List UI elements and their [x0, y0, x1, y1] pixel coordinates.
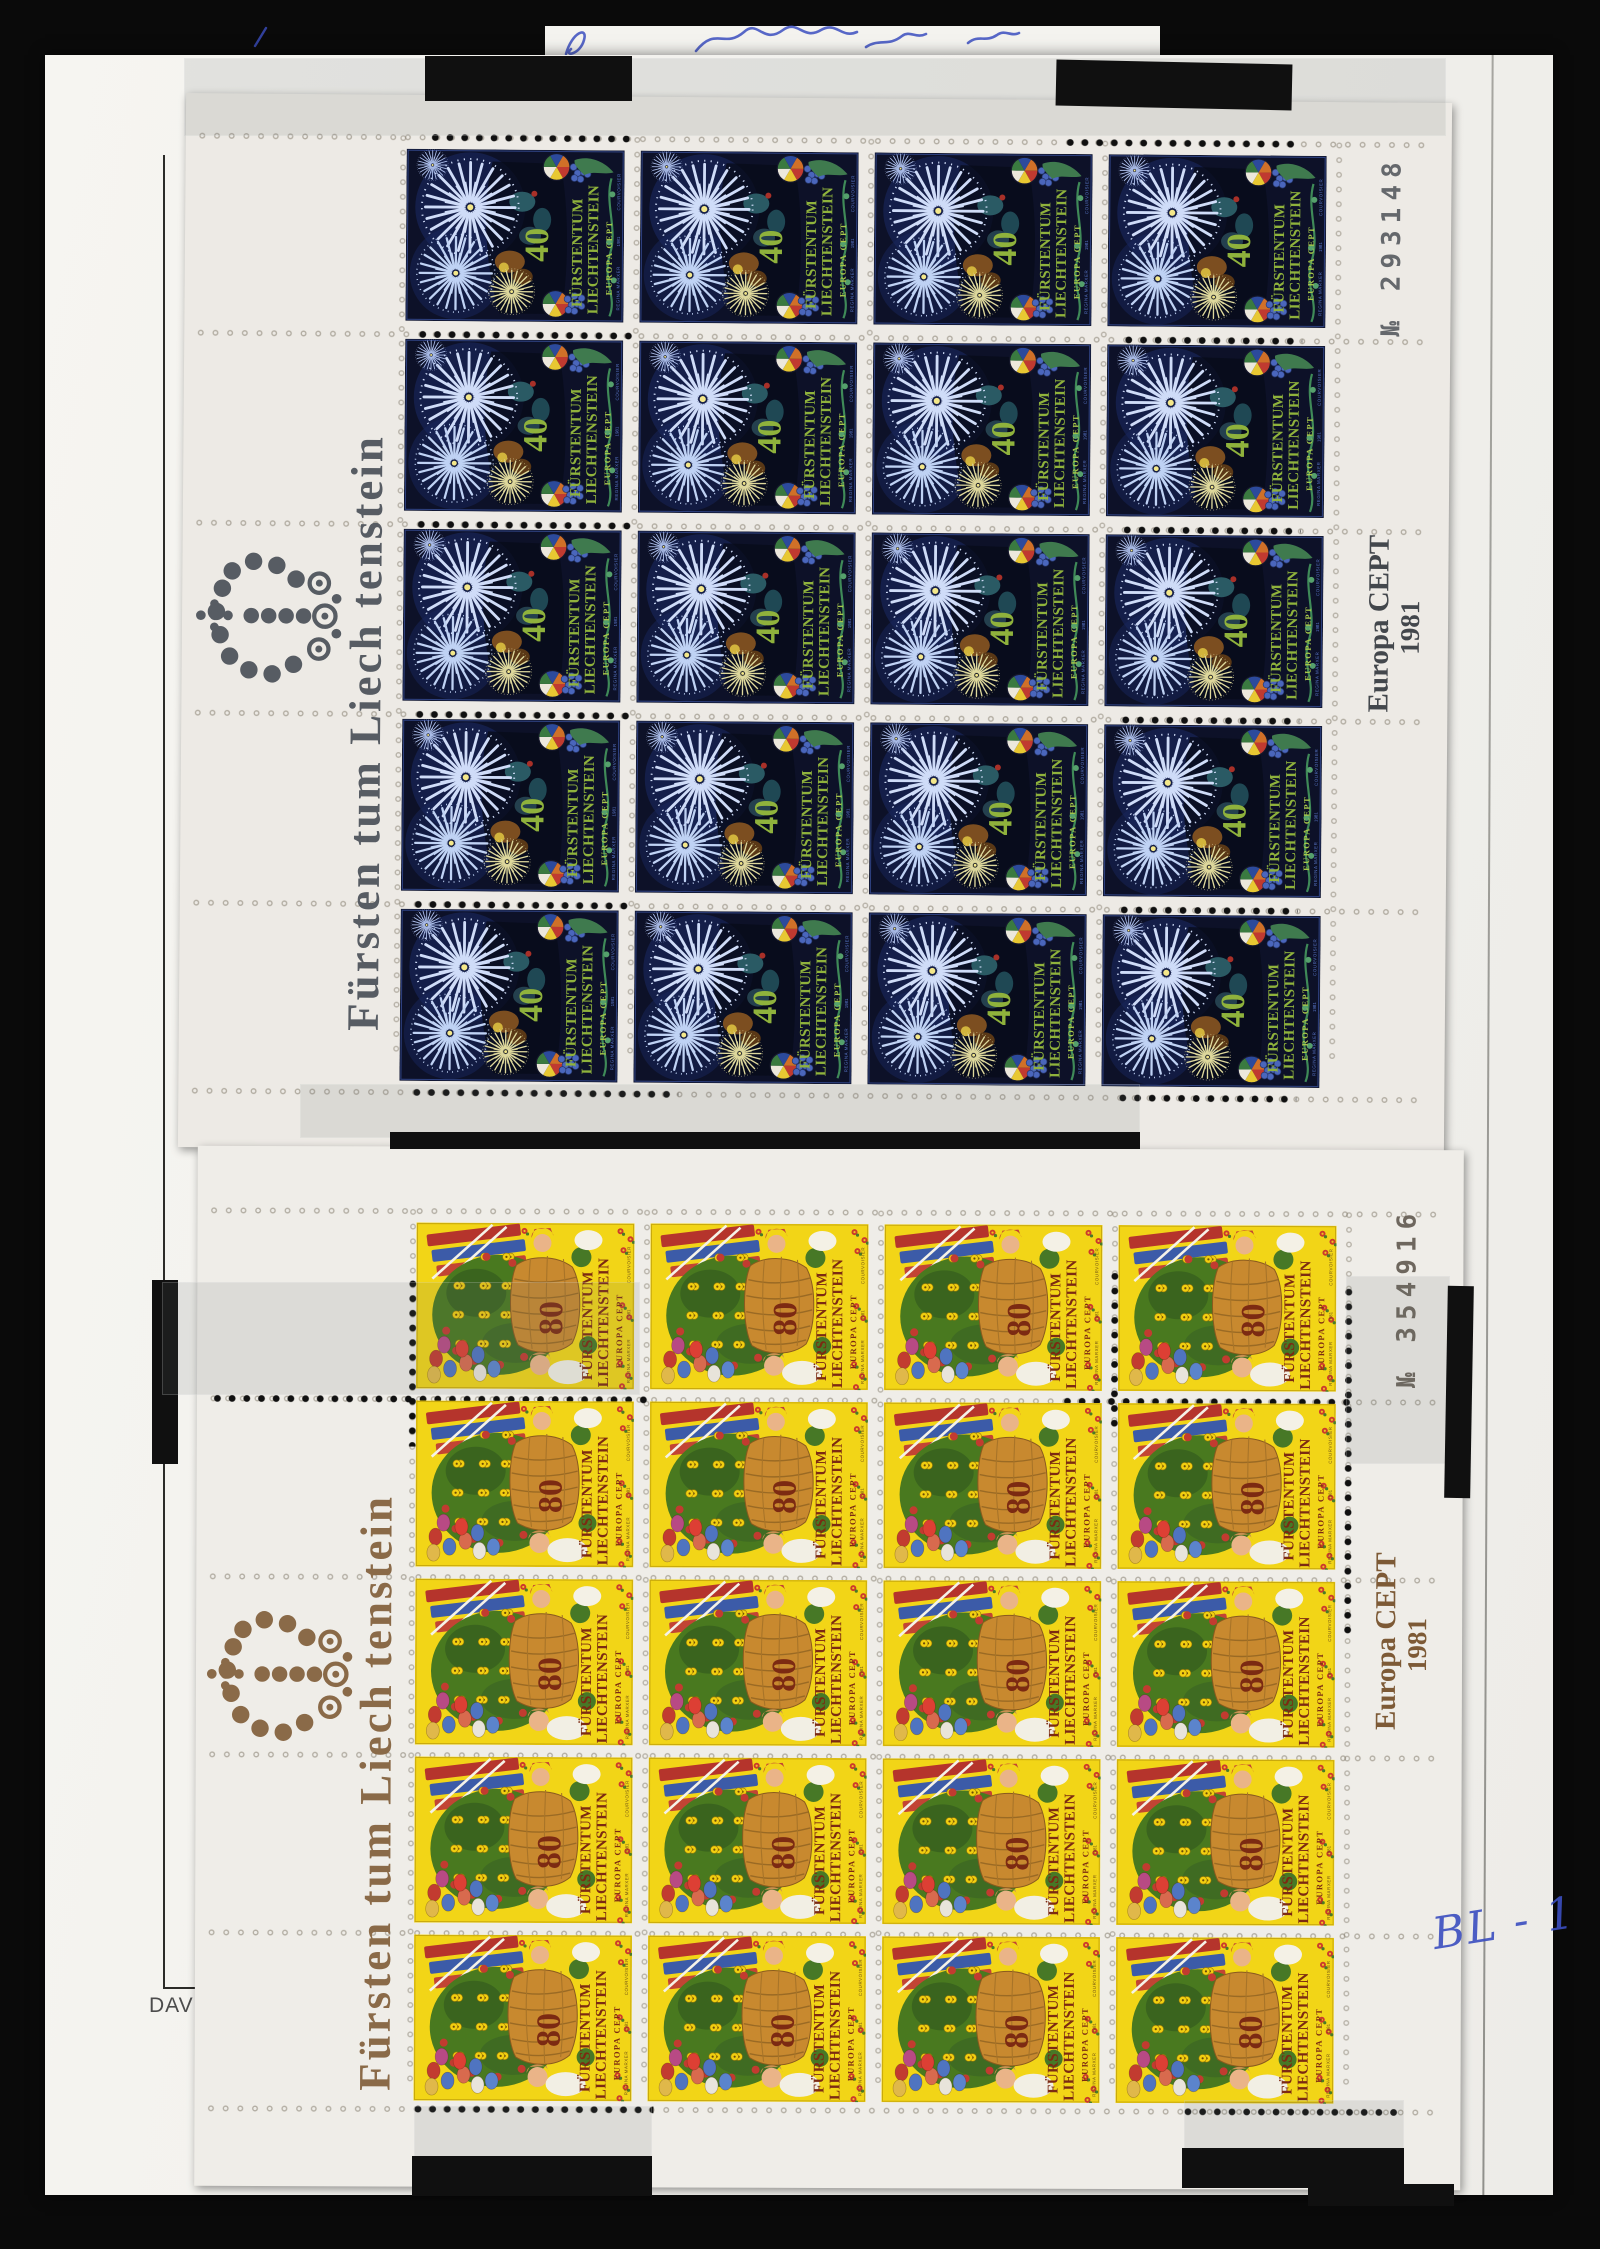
- mount-strip-black-backing: [1444, 1286, 1474, 1498]
- album-brand-text: DAV: [149, 1994, 194, 2018]
- perforation-column: [1326, 138, 1346, 1066]
- stamp-40-fireworks: [1107, 154, 1326, 328]
- stamp-40-fireworks: [1101, 914, 1320, 1088]
- stamp-80-basket-of-flowers: [647, 1935, 866, 2102]
- page-crease: [1482, 55, 1493, 2195]
- princely-crown-logo: [206, 1594, 362, 1755]
- stamp-80-basket-of-flowers: [650, 1223, 869, 1390]
- stamp-80-basket-of-flowers: [413, 1935, 632, 2102]
- stamp-40-fireworks: [402, 529, 621, 703]
- mount-strip-black-backing: [1056, 60, 1293, 111]
- stamp-40-fireworks: [869, 722, 1088, 896]
- stamp-80-basket-of-flowers: [649, 1579, 868, 1746]
- princely-crown-logo: [194, 535, 350, 696]
- stamp-40-fireworks: [636, 531, 855, 705]
- stamp-40-fireworks: [404, 339, 623, 513]
- stamp-80-basket-of-flowers: [414, 1757, 633, 1924]
- sheet-margin-inscription: Europa CEPT 1981: [1370, 1560, 1433, 1730]
- mount-strip-black-backing: [425, 56, 632, 101]
- stamp-40-fireworks: [870, 532, 1089, 706]
- handwriting-tick: [252, 26, 270, 48]
- inscription-line2: 1981: [1402, 1560, 1433, 1730]
- stamp-80-basket-of-flowers: [881, 1936, 1100, 2103]
- sheet-serial-number: № 293148: [1376, 136, 1408, 336]
- stamp-40-fireworks: [873, 152, 1092, 326]
- stamp-sheet-40-fireworks: Fürsten tum Liech tenstein№ 293148 Europ…: [178, 93, 1452, 1157]
- stamp-80-basket-of-flowers: [882, 1758, 1101, 1925]
- stamp-80-basket-of-flowers: [1118, 1225, 1337, 1392]
- stamp-40-fireworks: [399, 909, 618, 1083]
- mount-strip-film: [1346, 1276, 1450, 1464]
- stamp-80-basket-of-flowers: [1117, 1581, 1336, 1748]
- stamp-80-basket-of-flowers: [1116, 1759, 1335, 1926]
- inscription-line1: Europa CEPT: [1362, 542, 1396, 712]
- mount-strip-black-backing: [1308, 2184, 1454, 2206]
- stamp-40-fireworks: [867, 912, 1086, 1086]
- sheet-margin-country-text: Fürsten tum Liech tenstein: [336, 366, 394, 1098]
- stamp-80-basket-of-flowers: [649, 1401, 868, 1568]
- stamp-80-basket-of-flowers: [415, 1579, 634, 1746]
- stamp-80-basket-of-flowers: [883, 1580, 1102, 1747]
- stamp-40-fireworks: [1103, 724, 1322, 898]
- mount-strip-film: [300, 1084, 1140, 1138]
- stamp-40-fireworks: [872, 342, 1091, 516]
- photo-canvas: DAV 40 FÜRSTENTUM LIECHTENSTEIN EUROPA C…: [0, 0, 1600, 2249]
- stamp-80-basket-of-flowers: [884, 1224, 1103, 1391]
- stamp-80-basket-of-flowers: [1115, 1937, 1334, 2104]
- mount-strip-film: [162, 1282, 640, 1395]
- mount-strip-black-backing: [412, 2156, 652, 2196]
- stamp-40-fireworks: [401, 719, 620, 893]
- stamp-80-basket-of-flowers: [1117, 1403, 1336, 1570]
- mount-strip-black-backing: [1182, 2148, 1404, 2188]
- stamp-40-fireworks: [405, 149, 624, 323]
- inscription-line2: 1981: [1395, 543, 1427, 713]
- inscription-line1: Europa CEPT: [1370, 1560, 1403, 1730]
- mount-strip-black-backing: [390, 1132, 1140, 1149]
- perforation-row: [208, 1204, 1444, 1221]
- page-frame-line-left: [163, 155, 165, 1989]
- sheet-margin-inscription: Europa CEPT 1981: [1362, 542, 1426, 712]
- stamp-40-fireworks: [1104, 534, 1323, 708]
- stamp-80-basket-of-flowers: [648, 1757, 867, 1924]
- perforation-row-black: [1064, 136, 1296, 151]
- perforation-row-black: [1116, 1091, 1296, 1105]
- stamp-40-fireworks: [635, 721, 854, 895]
- stamp-80-basket-of-flowers: [415, 1401, 634, 1568]
- stamp-40-fireworks: [638, 341, 857, 515]
- stamp-40-fireworks: [639, 151, 858, 325]
- stamp-40-fireworks: [633, 911, 852, 1085]
- stamp-80-basket-of-flowers: [883, 1402, 1102, 1569]
- stamp-40-fireworks: [1106, 344, 1325, 518]
- sheet-margin-country-text: Fürsten tum Liech tenstein: [348, 1426, 403, 2158]
